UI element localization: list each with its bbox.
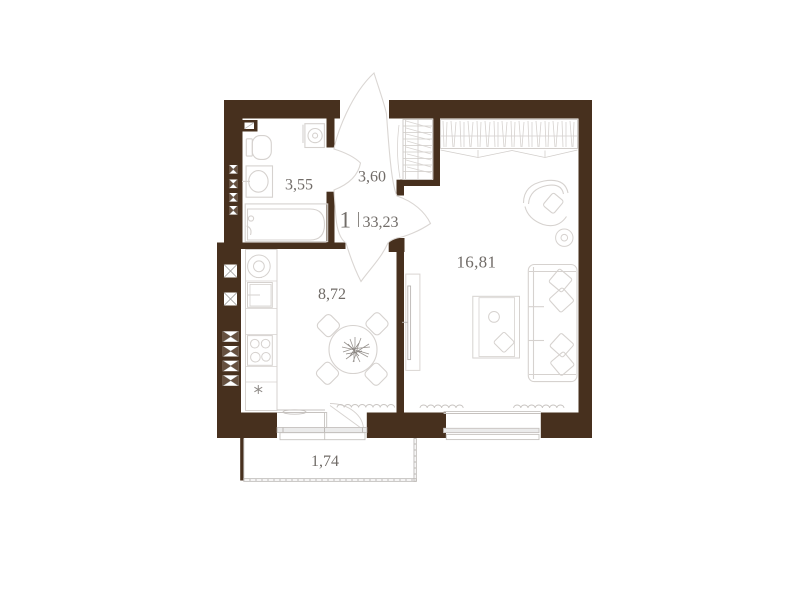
svg-text:33,23: 33,23 bbox=[363, 214, 399, 231]
svg-text:1,74: 1,74 bbox=[311, 453, 339, 470]
svg-text:16,81: 16,81 bbox=[457, 253, 497, 272]
svg-text:1: 1 bbox=[340, 208, 352, 233]
svg-text:3,55: 3,55 bbox=[285, 177, 313, 194]
svg-text:3,60: 3,60 bbox=[358, 169, 386, 186]
svg-text:8,72: 8,72 bbox=[318, 286, 346, 303]
